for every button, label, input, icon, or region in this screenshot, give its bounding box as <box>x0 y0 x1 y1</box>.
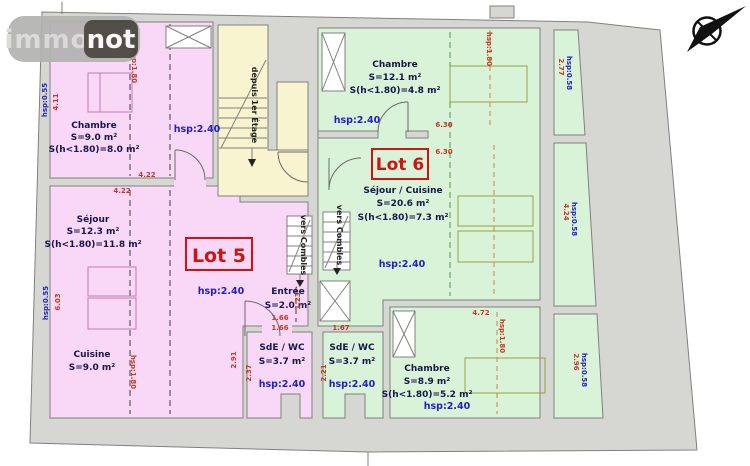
sejour-cuisine-area-low: S(h<1.80)=7.3 m² <box>358 213 449 223</box>
dim-6-03: 6.03 <box>54 293 62 310</box>
chambre-nw-name: Chambre <box>71 121 116 131</box>
door-gap-chambre-sejour <box>174 177 206 187</box>
chambre-ne-hsp: hsp:2.40 <box>334 115 381 126</box>
top-wall-notch <box>490 6 514 18</box>
dim-6-30-a: 6.30 <box>435 121 452 129</box>
chambre-nw-area-low: S(h<1.80)=8.0 m² <box>49 145 140 155</box>
chambre-se-area: S=8.9 m² <box>404 377 450 387</box>
chambre-se-hsp: hsp:2.40 <box>424 401 471 412</box>
chambre-ne-area: S=12.1 m² <box>369 73 422 83</box>
lot6-label: Lot 6 <box>376 155 424 175</box>
sejour-cuisine-area: S=20.6 m² <box>377 199 430 209</box>
dim-2-96: 2.96 <box>572 353 580 370</box>
dim-4-24: 4.24 <box>562 203 570 220</box>
crossed-box-green-top <box>322 33 345 91</box>
sde-lot5-name: SdE / WC <box>259 343 305 353</box>
chambre-se-name: Chambre <box>404 364 449 374</box>
crossed-box-pink <box>166 26 211 48</box>
hsp055-mid: hsp:0.55 <box>42 286 50 320</box>
crossed-box-green-mid <box>320 281 350 321</box>
immonot-logo: immo not <box>5 16 140 62</box>
hsp055-top: hsp:0.55 <box>41 83 49 117</box>
dim-1-66-a: 1.66 <box>271 314 288 322</box>
dim-2-91: 2.91 <box>230 351 238 368</box>
chambre-nw-area: S=9.0 m² <box>71 133 117 143</box>
floorplan-canvas: Lot 5 Lot 6 Chambre S=9.0 m² S(h<1.80)=8… <box>0 0 750 466</box>
hsp180-se: hsp:1.80 <box>498 319 506 353</box>
crossed-box-green-bottom <box>393 311 415 357</box>
chambre-ne-area-low: S(h<1.80)=4.8 m² <box>350 86 441 96</box>
cuisine-name: Cuisine <box>73 350 110 360</box>
chambre-ne-name: Chambre <box>372 60 417 70</box>
sejour-area: S=12.3 m² <box>67 227 120 237</box>
sejour-name: Séjour <box>77 214 110 225</box>
hsp058-mid: hsp:0.58 <box>570 202 578 236</box>
svg-text:immo: immo <box>5 25 90 55</box>
north-arrow-icon <box>687 6 746 52</box>
dim-2-37: 2.37 <box>245 364 253 381</box>
stair-combles-lot6-label: vers Combles <box>335 205 344 266</box>
sde-lot6-hsp: hsp:2.40 <box>329 379 376 390</box>
hsp180-sw: hsp:1.80 <box>129 355 137 389</box>
dim-1-23: 1.23 <box>294 292 302 309</box>
sejour-area-low: S(h<1.80)=11.8 m² <box>44 240 141 250</box>
dim-4-22-bottom: 4.22 <box>113 187 130 195</box>
dim-2-77: 2.77 <box>557 58 565 75</box>
chambre-nw-hsp: hsp:2.40 <box>174 124 221 135</box>
chambre-se-area-low: S(h<1.80)=5.2 m² <box>382 390 473 400</box>
hsp058-bottom: hsp:0.58 <box>580 353 588 387</box>
dim-4-11: 4.11 <box>52 93 60 110</box>
wall-chambre-ne-right <box>406 131 428 138</box>
wall-chambre-ne-left <box>318 131 378 138</box>
entree-area: S=2.0 m² <box>265 301 311 311</box>
hsp180-ne: hsp:1.80 <box>485 32 493 66</box>
lot5-label: Lot 5 <box>192 245 246 267</box>
floorplan-svg: Lot 5 Lot 6 Chambre S=9.0 m² S(h<1.80)=8… <box>0 0 750 466</box>
dim-4-72: 4.72 <box>472 309 489 317</box>
sejour-hsp: hsp:2.40 <box>198 286 245 297</box>
dim-2-21: 2.21 <box>320 364 328 381</box>
sejour-cuisine-hsp: hsp:2.40 <box>379 259 426 270</box>
sde-lot6-area: S=3.7 m² <box>329 357 375 367</box>
cuisine-area: S=9.0 m² <box>69 363 115 373</box>
stair-main-label: depuis 1er Étage <box>250 67 261 144</box>
dim-1-67: 1.67 <box>332 324 349 332</box>
dim-6-30-b: 6.30 <box>435 148 452 156</box>
stair-landing <box>277 82 308 150</box>
dim-1-66-b: 1.66 <box>271 324 288 332</box>
stair-combles-lot5-label: vers Combles <box>299 215 308 276</box>
svg-text:not: not <box>87 25 136 55</box>
sde-lot6-name: SdE / WC <box>329 343 375 353</box>
dim-4-22-top: 4.22 <box>138 171 155 179</box>
hsp058-top: hsp:0.58 <box>565 56 573 90</box>
sejour-cuisine-name: Séjour / Cuisine <box>363 185 442 196</box>
sde-lot5-hsp: hsp:2.40 <box>259 379 306 390</box>
sde-lot5-area: S=3.7 m² <box>259 357 305 367</box>
